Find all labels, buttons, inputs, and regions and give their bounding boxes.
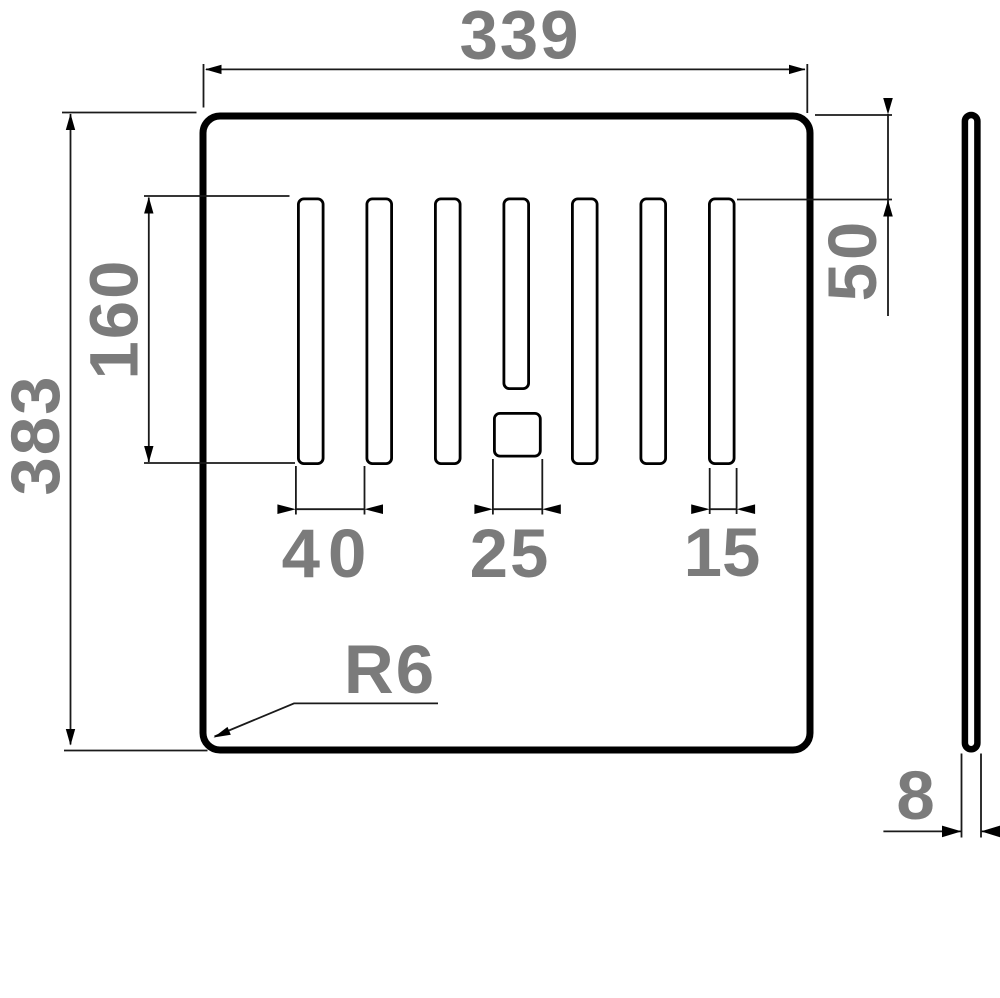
svg-text:R6: R6 [344, 631, 436, 708]
svg-text:40: 40 [282, 515, 375, 592]
svg-text:160: 160 [76, 258, 153, 379]
svg-text:8: 8 [896, 757, 934, 834]
svg-text:25: 25 [470, 515, 551, 592]
svg-text:50: 50 [814, 219, 891, 302]
svg-text:383: 383 [0, 374, 74, 495]
svg-text:15: 15 [684, 514, 761, 591]
svg-text:339: 339 [459, 0, 580, 74]
